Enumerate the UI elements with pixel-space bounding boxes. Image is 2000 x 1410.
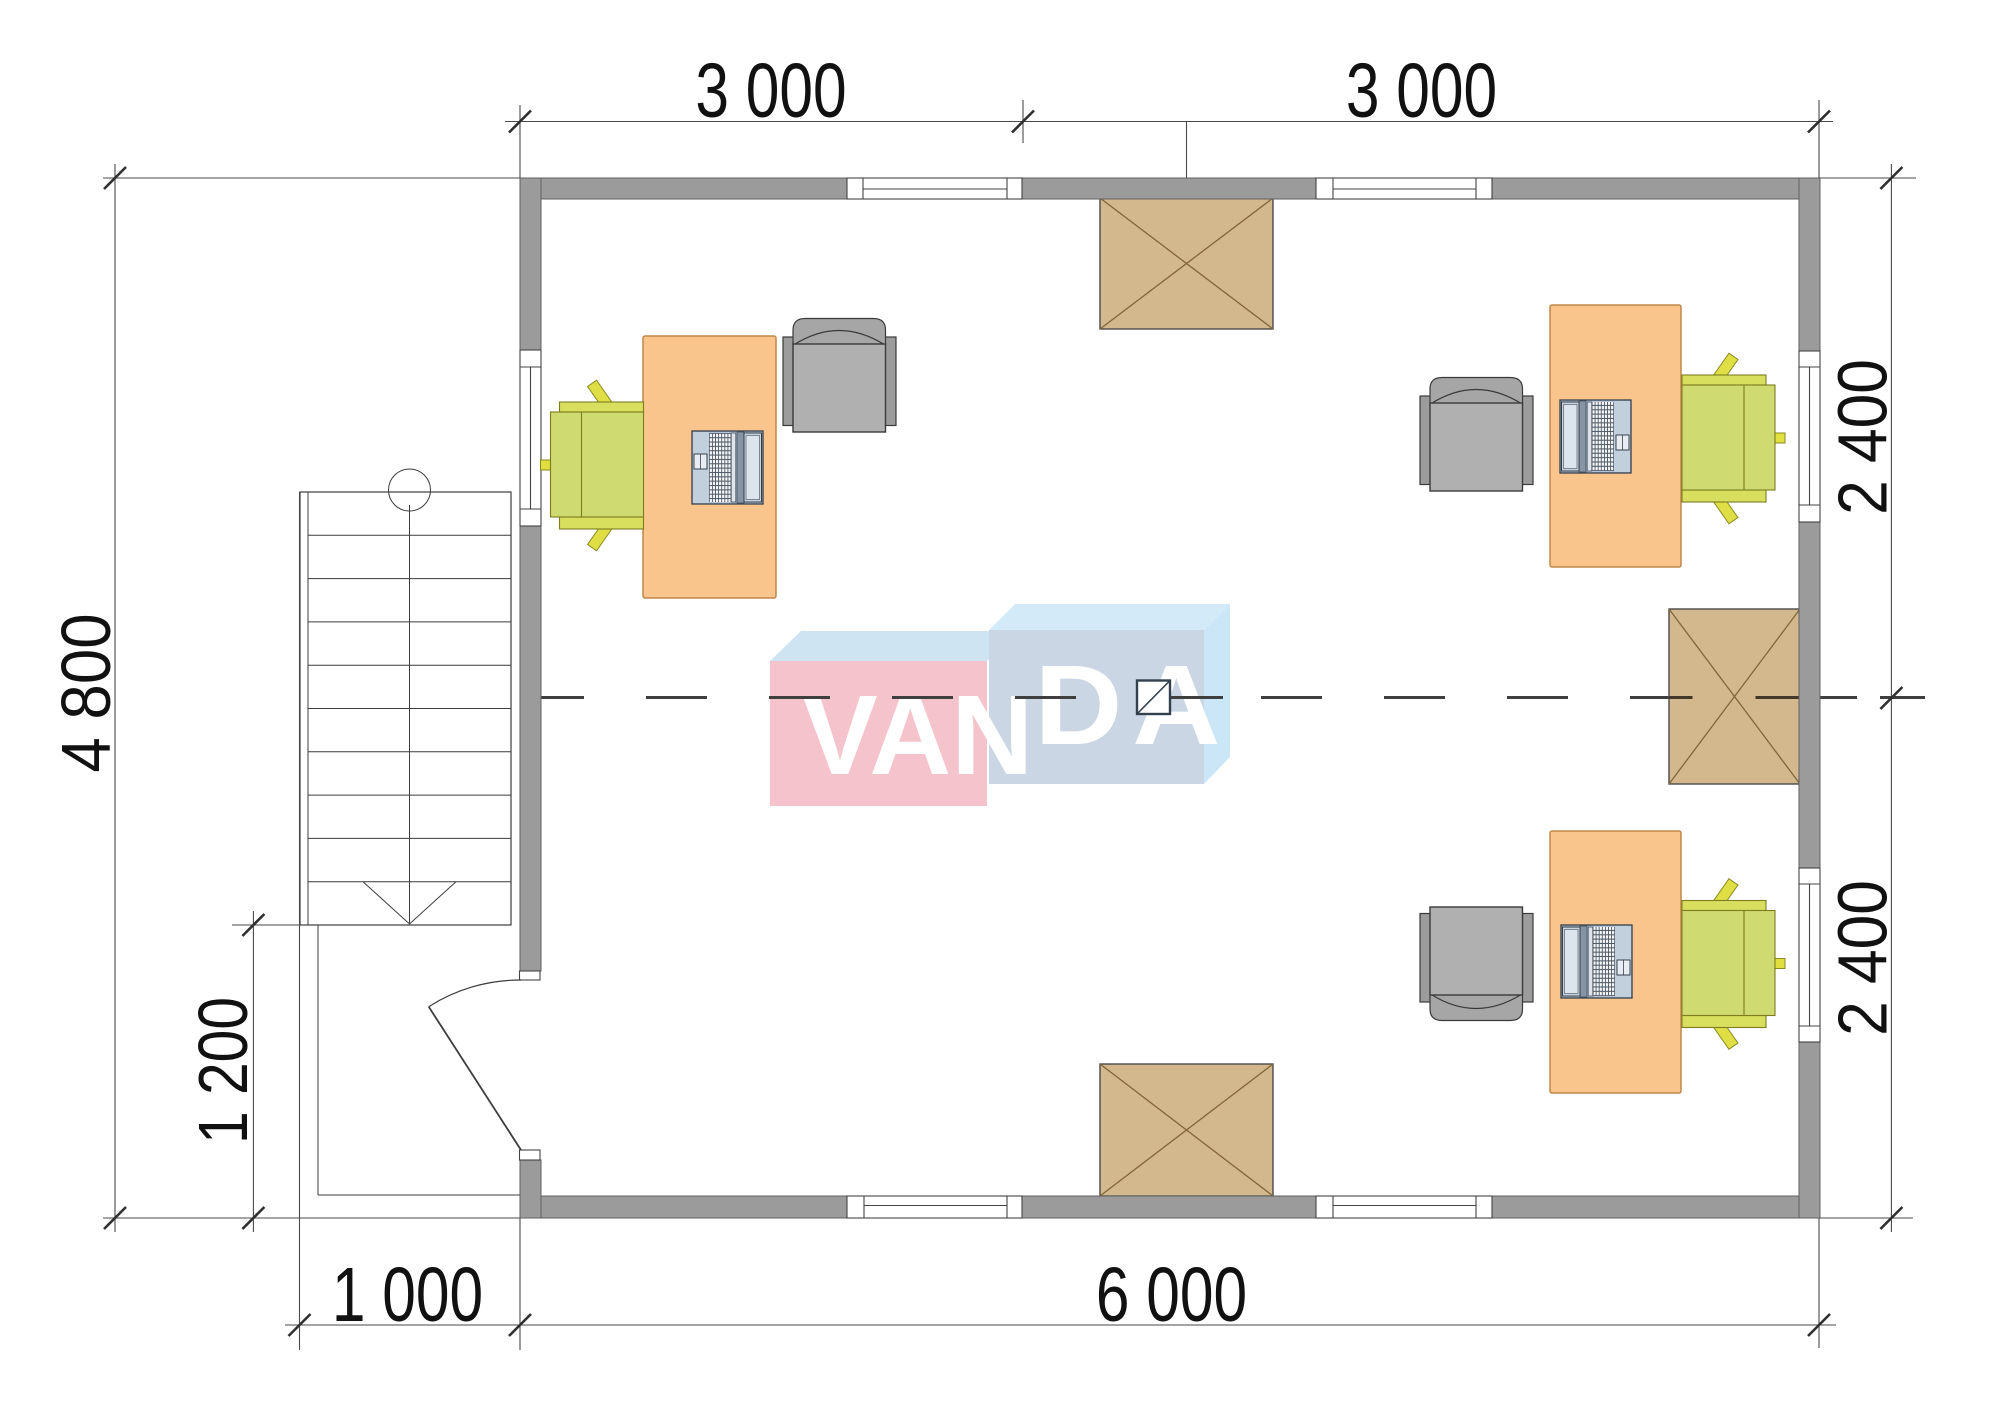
svg-text:3 000: 3 000 <box>1346 47 1497 134</box>
svg-text:3 000: 3 000 <box>695 47 846 134</box>
svg-text:6 000: 6 000 <box>1096 1251 1247 1338</box>
svg-text:4 800: 4 800 <box>47 613 125 772</box>
svg-text:2 400: 2 400 <box>1824 880 1902 1036</box>
svg-text:1 200: 1 200 <box>183 997 262 1144</box>
svg-text:2 400: 2 400 <box>1824 359 1902 515</box>
svg-text:1 000: 1 000 <box>332 1251 483 1338</box>
svg-text:VAN: VAN <box>802 672 1033 799</box>
svg-text:DA: DA <box>1034 642 1230 768</box>
